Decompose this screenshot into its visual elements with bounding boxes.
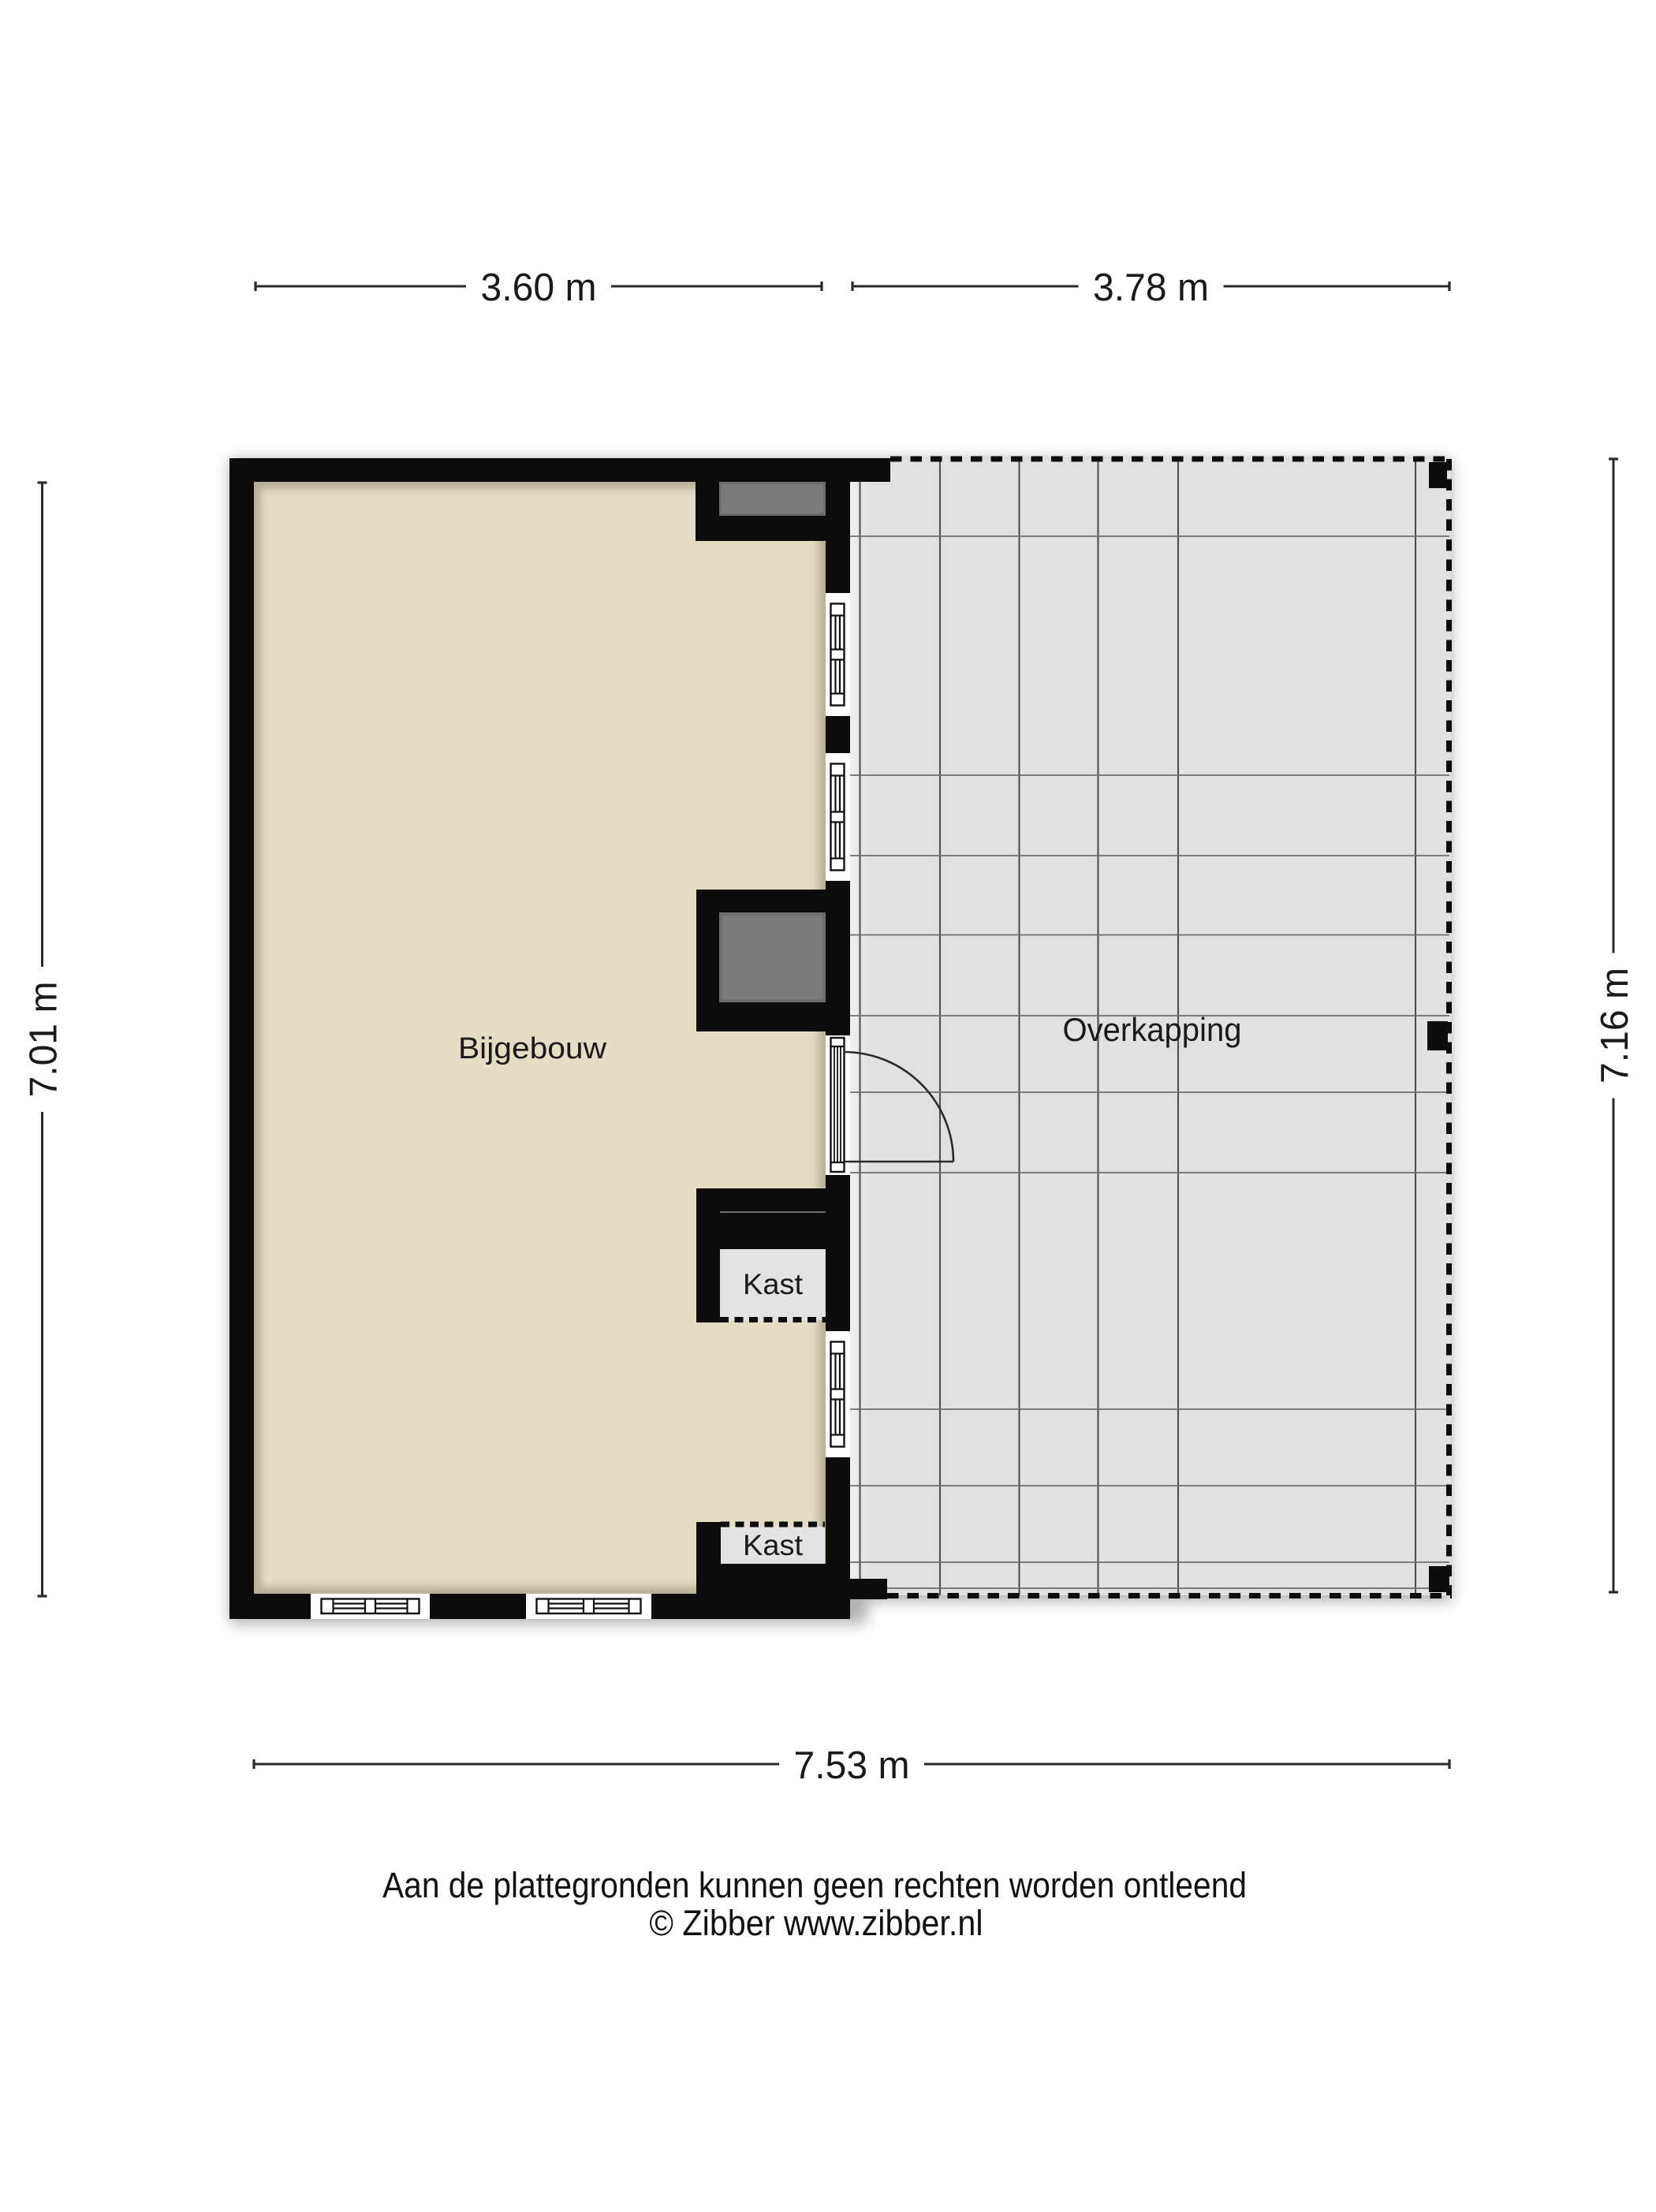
svg-text:7.01 m: 7.01 m [22, 982, 65, 1098]
svg-text:Kast: Kast [743, 1528, 804, 1561]
svg-text:3.78 m: 3.78 m [1093, 266, 1209, 309]
svg-text:Aan de plattegronden kunnen ge: Aan de plattegronden kunnen geen rechten… [382, 1865, 1247, 1905]
svg-text:7.53 m: 7.53 m [794, 1744, 910, 1787]
svg-text:3.60 m: 3.60 m [481, 266, 597, 309]
svg-text:Kast: Kast [743, 1267, 804, 1300]
svg-text:Overkapping: Overkapping [1063, 1011, 1242, 1048]
svg-text:© Zibber www.zibber.nl: © Zibber www.zibber.nl [650, 1903, 983, 1943]
svg-text:Bijgebouw: Bijgebouw [458, 1032, 607, 1065]
svg-text:7.16 m: 7.16 m [1593, 968, 1636, 1084]
